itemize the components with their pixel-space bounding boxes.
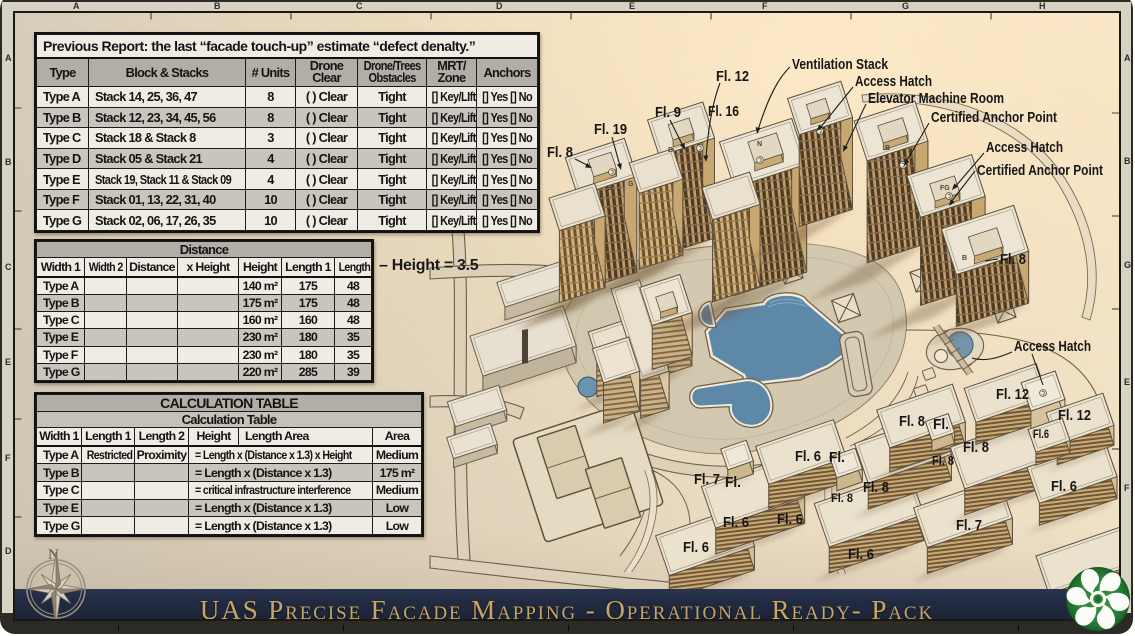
svg-text:Ventilation Stack: Ventilation Stack xyxy=(792,57,889,73)
svg-text:Fl. 12: Fl. 12 xyxy=(996,387,1029,403)
svg-text:Fl. 7: Fl. 7 xyxy=(956,518,982,534)
svg-text:Fl. 8: Fl. 8 xyxy=(899,414,925,430)
svg-text:Fl. 6: Fl. 6 xyxy=(795,449,821,465)
svg-text:Fl. 6: Fl. 6 xyxy=(848,547,874,563)
svg-text:Certified Anchor Point: Certified Anchor Point xyxy=(931,110,1057,126)
svg-text:Fl. 16: Fl. 16 xyxy=(708,104,739,120)
svg-text:Fl. 6: Fl. 6 xyxy=(1051,479,1077,495)
svg-text:Elevator Machine Room: Elevator Machine Room xyxy=(868,91,1004,107)
svg-text:Fl. 6: Fl. 6 xyxy=(683,540,709,556)
svg-text:Fl.: Fl. xyxy=(933,417,949,433)
svg-text:Fl. 19: Fl. 19 xyxy=(594,122,627,138)
svg-text:Fl.: Fl. xyxy=(829,450,845,466)
svg-text:Fl. 8: Fl. 8 xyxy=(547,145,573,161)
svg-text:Fl. 6: Fl. 6 xyxy=(777,512,803,528)
svg-text:B: B xyxy=(962,255,967,262)
svg-text:Fl. 8: Fl. 8 xyxy=(831,491,853,505)
svg-text:Fl. 12: Fl. 12 xyxy=(1058,408,1091,424)
svg-text:Fl.6: Fl.6 xyxy=(1033,429,1049,441)
svg-text:Fl. 8: Fl. 8 xyxy=(932,454,954,468)
svg-text:Certified Anchor Point: Certified Anchor Point xyxy=(977,163,1103,179)
svg-text:Access Hatch: Access Hatch xyxy=(855,74,932,90)
svg-text:B: B xyxy=(668,147,673,154)
svg-text:Access Hatch: Access Hatch xyxy=(986,140,1063,156)
svg-text:B: B xyxy=(885,145,890,152)
svg-text:Fl. 12: Fl. 12 xyxy=(716,69,749,85)
svg-text:FG: FG xyxy=(940,185,950,192)
svg-text:Fl. 9: Fl. 9 xyxy=(655,105,681,121)
svg-text:Fl. 7: Fl. 7 xyxy=(694,472,720,488)
svg-text:G: G xyxy=(628,181,634,188)
svg-text:Fl.: Fl. xyxy=(725,475,741,491)
svg-text:Access Hatch: Access Hatch xyxy=(1014,339,1091,355)
svg-text:Fl. 6: Fl. 6 xyxy=(723,515,749,531)
svg-text:B: B xyxy=(607,185,612,192)
svg-text:Fl. 8: Fl. 8 xyxy=(963,440,989,456)
svg-text:Fl. 8: Fl. 8 xyxy=(1000,252,1026,268)
svg-text:N: N xyxy=(757,141,762,148)
svg-text:Fl. 8: Fl. 8 xyxy=(863,480,889,496)
